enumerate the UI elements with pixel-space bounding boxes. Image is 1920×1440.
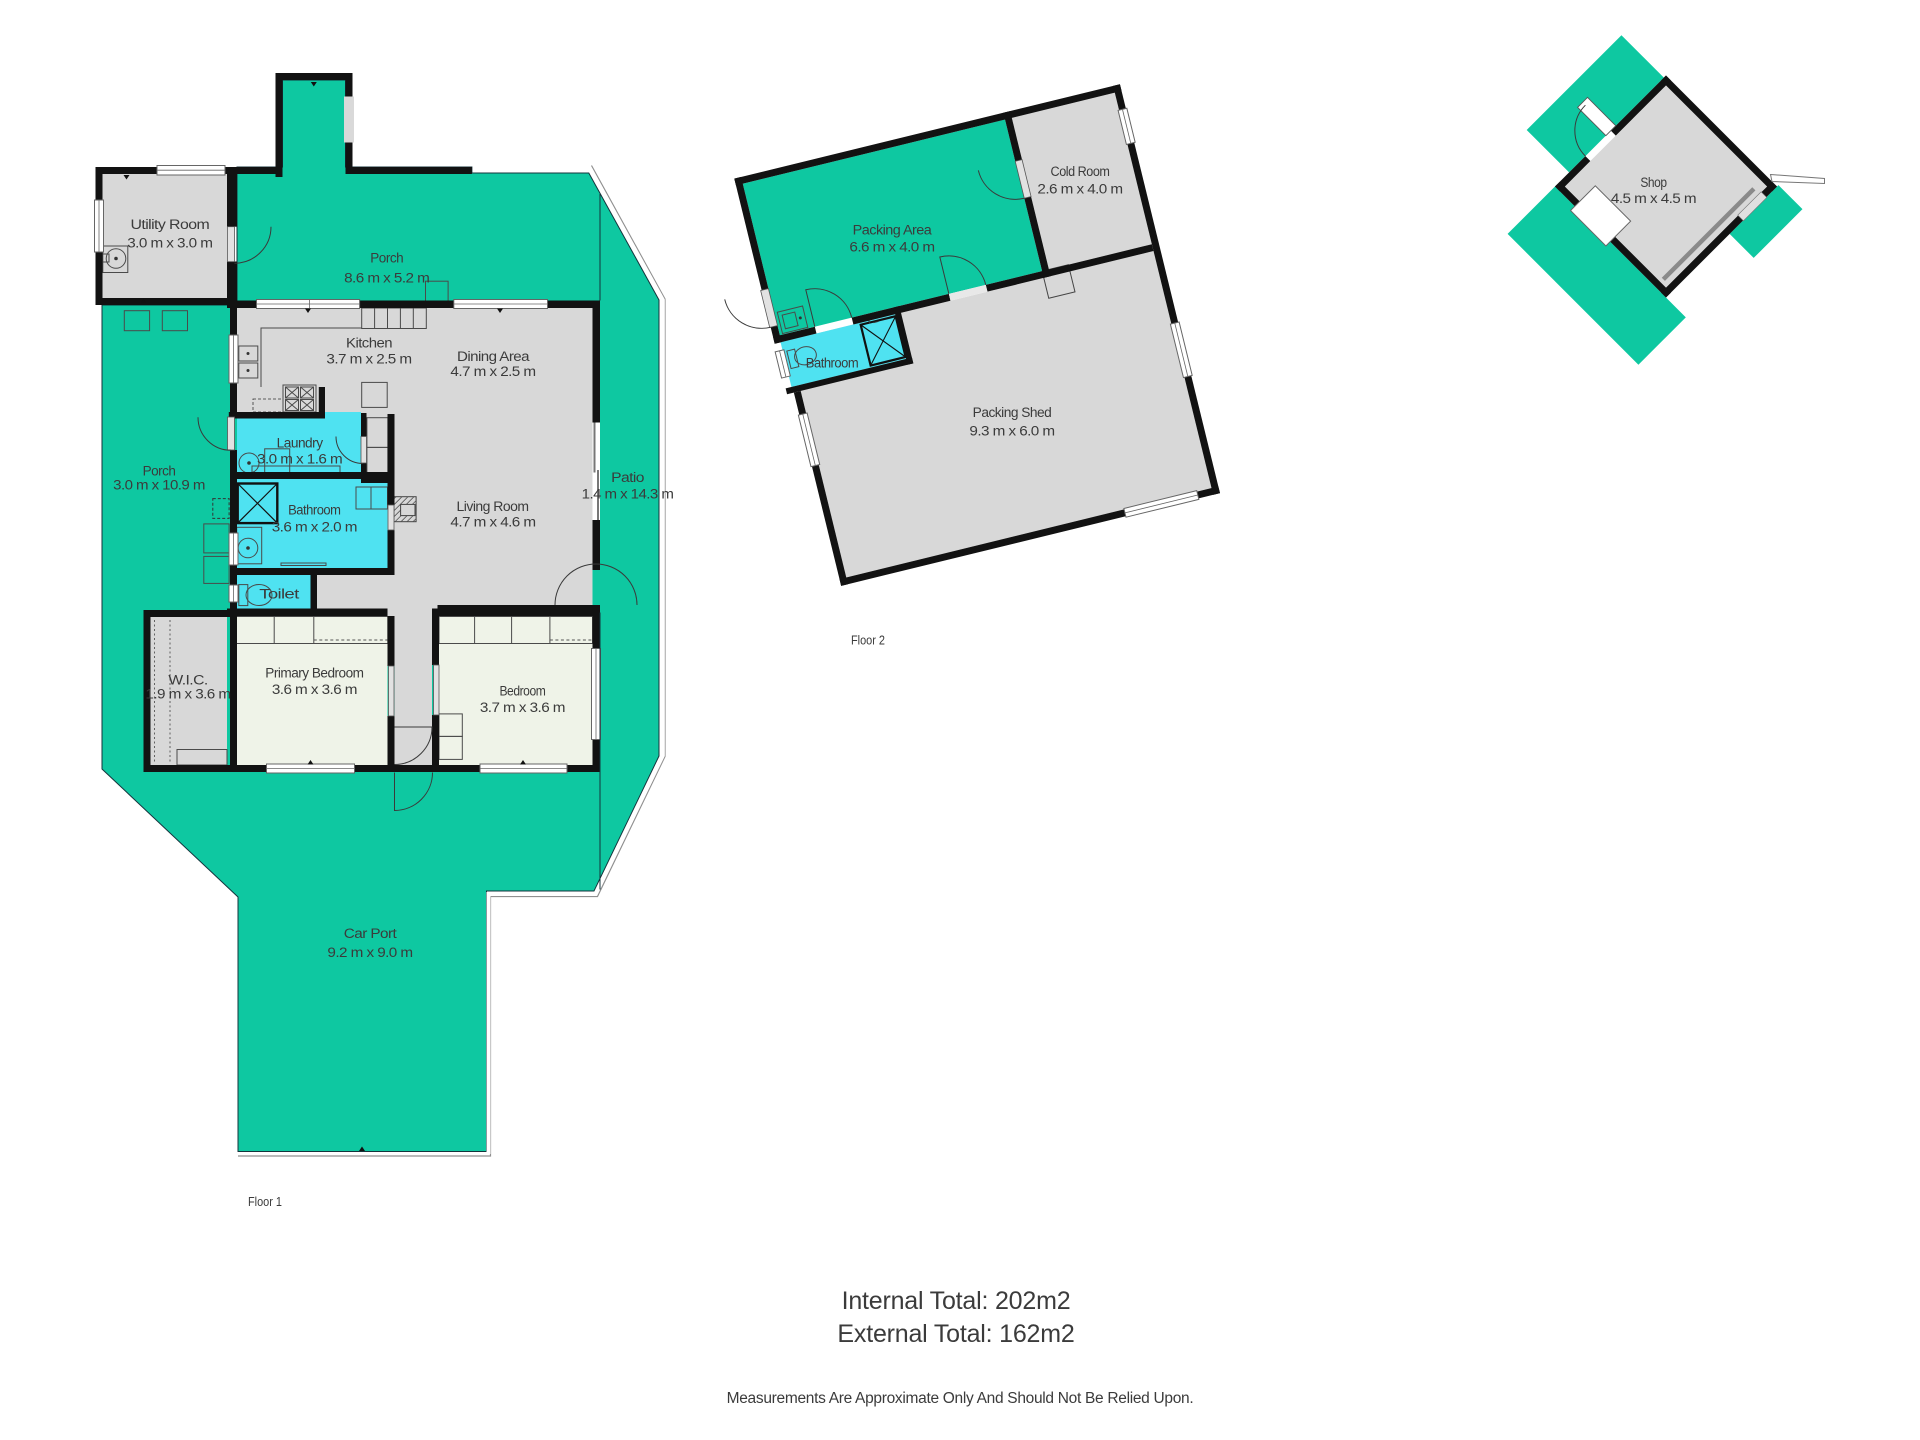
svg-text:1.9 m x 3.6 m: 1.9 m x 3.6 m: [145, 687, 230, 702]
svg-text:Dining Area: Dining Area: [457, 349, 530, 364]
svg-text:1.4 m x 14.3 m: 1.4 m x 14.3 m: [582, 487, 674, 502]
svg-text:9.2 m x 9.0 m: 9.2 m x 9.0 m: [327, 945, 412, 960]
svg-text:Living Room: Living Room: [457, 499, 529, 514]
svg-text:8.6 m x 5.2 m: 8.6 m x 5.2 m: [344, 271, 429, 286]
svg-text:3.0 m x 1.6 m: 3.0 m x 1.6 m: [257, 451, 342, 466]
svg-text:Kitchen: Kitchen: [346, 336, 392, 351]
svg-text:4.7 m x 2.5 m: 4.7 m x 2.5 m: [450, 364, 535, 379]
svg-text:Packing Area: Packing Area: [853, 223, 933, 238]
svg-text:Laundry: Laundry: [277, 436, 324, 451]
svg-text:Packing Shed: Packing Shed: [973, 405, 1052, 420]
svg-text:Floor 1: Floor 1: [248, 1194, 282, 1209]
svg-text:Porch: Porch: [143, 463, 176, 478]
svg-text:Cold Room: Cold Room: [1051, 164, 1110, 179]
svg-text:Patio: Patio: [611, 470, 644, 485]
svg-text:Measurements Are Approximate O: Measurements Are Approximate Only And Sh…: [727, 1390, 1194, 1407]
svg-text:2.6 m x 4.0 m: 2.6 m x 4.0 m: [1037, 182, 1122, 197]
svg-text:9.3 m x 6.0 m: 9.3 m x 6.0 m: [969, 423, 1054, 438]
svg-text:3.6 m x 2.0 m: 3.6 m x 2.0 m: [272, 520, 357, 535]
svg-text:4.7 m x 4.6 m: 4.7 m x 4.6 m: [450, 515, 535, 530]
svg-text:4.5 m x 4.5 m: 4.5 m x 4.5 m: [1611, 191, 1696, 206]
svg-text:3.0 m x 3.0 m: 3.0 m x 3.0 m: [127, 235, 212, 250]
svg-text:Internal Total: 202m2: Internal Total: 202m2: [842, 1287, 1071, 1315]
svg-text:Car Port: Car Port: [344, 926, 397, 941]
svg-text:Bathroom: Bathroom: [288, 502, 341, 517]
svg-text:Porch: Porch: [370, 251, 403, 266]
svg-text:Toilet: Toilet: [259, 587, 299, 602]
svg-text:Utility Room: Utility Room: [131, 217, 210, 232]
svg-text:Bathroom: Bathroom: [806, 356, 859, 371]
svg-text:6.6 m x 4.0 m: 6.6 m x 4.0 m: [849, 240, 934, 255]
svg-text:Primary Bedroom: Primary Bedroom: [265, 666, 363, 681]
svg-text:External Total: 162m2: External Total: 162m2: [837, 1320, 1074, 1348]
svg-text:Bedroom: Bedroom: [499, 684, 545, 699]
svg-text:Shop: Shop: [1640, 175, 1666, 190]
svg-text:3.0 m x 10.9 m: 3.0 m x 10.9 m: [113, 478, 205, 493]
svg-text:3.7 m x 3.6 m: 3.7 m x 3.6 m: [480, 700, 565, 715]
svg-text:3.7 m x 2.5 m: 3.7 m x 2.5 m: [326, 351, 411, 366]
svg-text:3.6 m x 3.6 m: 3.6 m x 3.6 m: [272, 682, 357, 697]
svg-text:Floor 2: Floor 2: [851, 633, 885, 648]
svg-text:W.I.C.: W.I.C.: [168, 673, 207, 688]
